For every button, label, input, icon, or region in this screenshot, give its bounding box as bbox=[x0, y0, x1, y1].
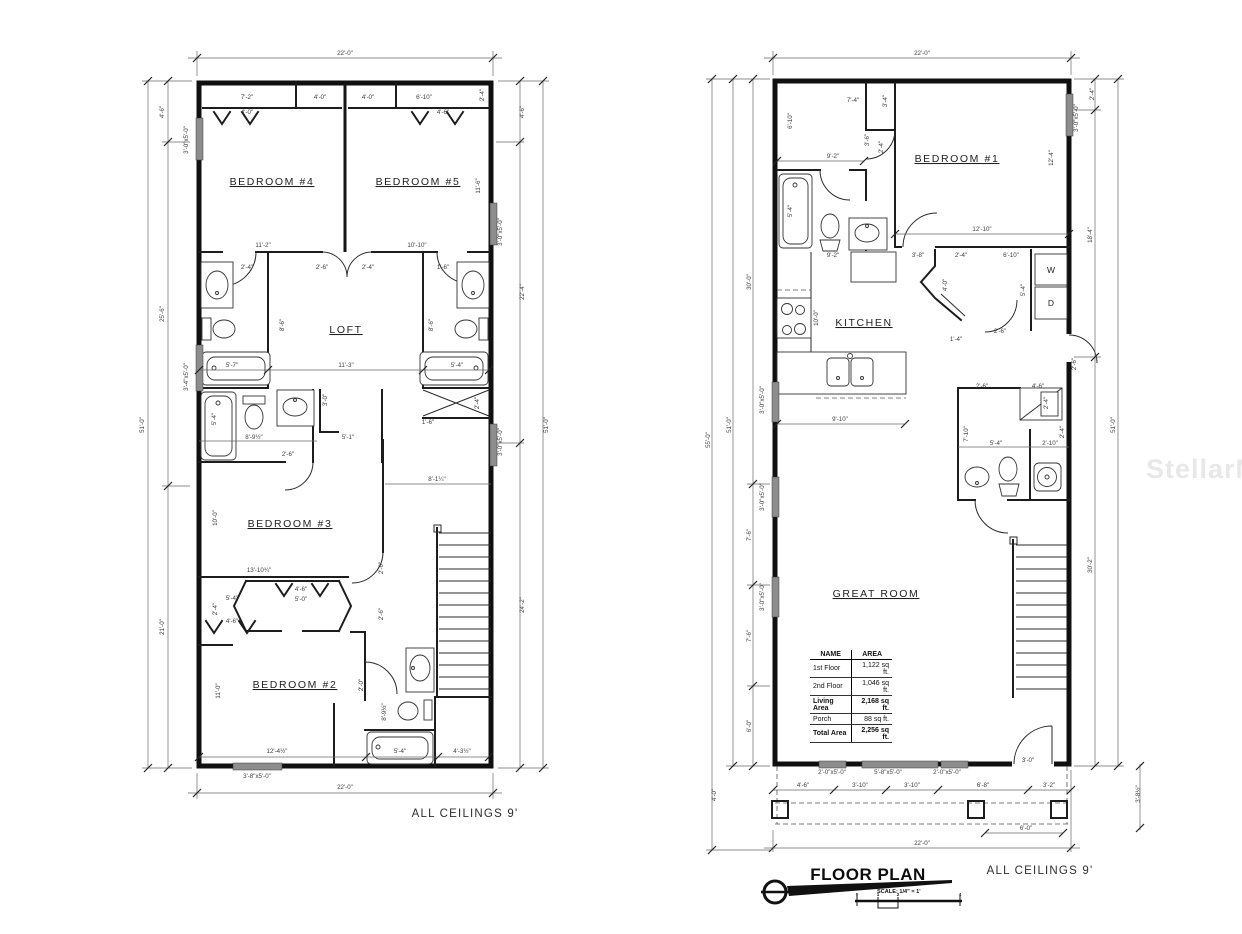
stove-icon bbox=[777, 298, 811, 338]
dim-label: 2'-4" bbox=[1089, 88, 1096, 100]
sheet-title: FLOOR PLAN bbox=[810, 865, 926, 884]
title-block: FLOOR PLAN SCALE: 1/4" = 1' 0124 bbox=[761, 865, 962, 908]
toilet-tank bbox=[243, 396, 265, 404]
toilet-icon bbox=[213, 320, 235, 338]
second-floor-doors bbox=[222, 252, 468, 694]
dim-label: 5'-8"x5'-0" bbox=[874, 769, 902, 776]
second-floor-plan bbox=[142, 51, 549, 799]
burner bbox=[782, 304, 793, 315]
dim-label: D bbox=[1048, 298, 1054, 308]
room-label: KITCHEN bbox=[835, 317, 892, 329]
first-floor-fixtures bbox=[777, 174, 1067, 544]
side-door-opening bbox=[1065, 334, 1073, 362]
dim-label: 5'-4" bbox=[1020, 284, 1027, 296]
dim-label: 8'-9½" bbox=[245, 434, 262, 441]
dim-label: 4'-0" bbox=[711, 789, 718, 801]
dim-label: 6'-10" bbox=[787, 113, 794, 129]
dim-label: 4'-6" bbox=[519, 106, 526, 118]
dim-label: 4'-0" bbox=[942, 279, 949, 291]
dim-label: 4'-6" bbox=[437, 109, 449, 116]
dim-label: 2'-0"x5'-0" bbox=[933, 769, 961, 776]
room-label: BEDROOM #1 bbox=[915, 153, 1000, 165]
dim-label: 2'-10" bbox=[1042, 440, 1058, 447]
dim-label: 9'-2" bbox=[827, 153, 839, 160]
area-table-row: 2nd Floor1,046 sq ft. bbox=[810, 678, 892, 696]
dim-label: 5'-4" bbox=[394, 748, 406, 755]
dim-label: 6'-8" bbox=[977, 782, 989, 789]
dim-label: 4'-3½" bbox=[453, 748, 470, 755]
dim-label: 3'-8" bbox=[912, 252, 924, 259]
dim-label: 3'-0"x5'-0" bbox=[497, 218, 504, 246]
dim-label: 21'-0" bbox=[159, 619, 166, 635]
dim-label: 51'-0" bbox=[726, 417, 733, 433]
dim-label: 3'-2" bbox=[1043, 782, 1055, 789]
dim-label: 10'-0" bbox=[813, 310, 820, 326]
dim-label: 2'-6" bbox=[976, 383, 988, 390]
dim-label: 4'-6" bbox=[295, 586, 307, 593]
dim-label: 8'-1¼" bbox=[428, 476, 445, 483]
name-cell: 2nd Floor bbox=[810, 678, 852, 696]
dim-label: 13'-10¾" bbox=[247, 567, 271, 574]
room-label: LOFT bbox=[329, 324, 362, 336]
toilet-tank bbox=[479, 318, 488, 340]
dim-label: 5'-7" bbox=[226, 362, 238, 369]
dim-label: 22'-0" bbox=[337, 50, 353, 57]
room-label: BEDROOM #5 bbox=[376, 176, 461, 188]
name-cell: Porch bbox=[810, 714, 852, 725]
dim-label: 10'-10" bbox=[407, 242, 426, 249]
dim-label: 2'-4" bbox=[362, 264, 374, 271]
dim-label: 6'-10" bbox=[1003, 252, 1019, 259]
dim-label: 5'-4" bbox=[787, 205, 794, 217]
dim-label: 5'-1" bbox=[342, 434, 354, 441]
dim-label: 4'-0" bbox=[314, 94, 326, 101]
dim-label: 6'-0" bbox=[746, 720, 753, 732]
dim-label: 3'-0"x5'-0" bbox=[183, 126, 190, 154]
dim-label: 1'-6" bbox=[437, 264, 449, 271]
porch-post bbox=[1051, 801, 1067, 818]
area-table-header: NAME AREA bbox=[810, 650, 892, 660]
area-cell: 2,256 sq ft. bbox=[852, 725, 892, 743]
dim-label: 22'-0" bbox=[914, 840, 930, 847]
dim-label: 22'-0" bbox=[337, 784, 353, 791]
stairs-up-icon bbox=[1016, 545, 1067, 689]
dim-label: 51'-0" bbox=[1110, 417, 1117, 433]
dim-label: 5'-4" bbox=[211, 413, 218, 425]
dim-label: 22'-4" bbox=[519, 284, 526, 300]
porch bbox=[772, 766, 1069, 824]
dim-label: 4 bbox=[959, 892, 962, 897]
dim-label: 5'-4" bbox=[451, 362, 463, 369]
dim-label: 1'-6" bbox=[422, 419, 434, 426]
dim-label: 12'-10" bbox=[972, 226, 991, 233]
dim-label: 2'-6" bbox=[378, 562, 385, 574]
dim-label: 8'-6" bbox=[428, 319, 435, 331]
dim-label: 3'-8½" bbox=[1135, 785, 1142, 802]
dim-label: 12'-4" bbox=[1048, 150, 1055, 166]
dim-label: 51'-0" bbox=[139, 417, 146, 433]
dim-label: 4'-0" bbox=[362, 94, 374, 101]
dim-label: 2'-6" bbox=[378, 608, 385, 620]
first-floor-ceiling-note: ALL CEILINGS 9' bbox=[987, 865, 1094, 877]
dim-label: 3'-0" bbox=[322, 394, 329, 406]
room-label: BEDROOM #2 bbox=[253, 679, 338, 691]
first-floor-plan bbox=[706, 51, 1144, 854]
dim-label: 24'-2" bbox=[519, 597, 526, 613]
toilet-icon bbox=[245, 405, 263, 429]
toilet-tank bbox=[820, 240, 840, 251]
dim-label: 0 bbox=[856, 892, 859, 897]
kitchen-sink-icon bbox=[827, 358, 849, 386]
dim-label: 22'-0" bbox=[914, 50, 930, 57]
dim-label: 8'-9½" bbox=[381, 703, 388, 720]
floor-plan-drawing: 22'-0"7'-2"4'-0"4'-0"6'-10"2'-4"4'-0"4'-… bbox=[0, 0, 1242, 934]
dim-label: 5'-4" bbox=[226, 595, 238, 602]
dim-label: 12'-4½" bbox=[267, 748, 288, 755]
room-label: BEDROOM #3 bbox=[248, 518, 333, 530]
dim-label: 3'-4"x5'-0" bbox=[183, 363, 190, 391]
dim-label: 30'-2" bbox=[1087, 557, 1094, 573]
dim-label: 7'-6" bbox=[746, 630, 753, 642]
dim-label: 10'-0" bbox=[212, 510, 219, 526]
dim-label: 3'-8"x5'-0" bbox=[243, 773, 271, 780]
dim-label: 2'-6" bbox=[316, 264, 328, 271]
dim-label: 2 bbox=[897, 892, 900, 897]
toilet-icon bbox=[999, 457, 1017, 481]
toilet-icon bbox=[455, 320, 477, 338]
dim-label: 11'-3" bbox=[338, 362, 353, 369]
dim-label: 4'-6" bbox=[797, 782, 809, 789]
dim-label: 7'-6" bbox=[746, 529, 753, 541]
toilet-tank bbox=[999, 484, 1019, 496]
area-cell: 2,168 sq ft. bbox=[852, 696, 892, 714]
porch-post bbox=[772, 801, 788, 818]
dim-label: 2'-4" bbox=[1043, 397, 1050, 409]
room-label: BEDROOM #4 bbox=[230, 176, 315, 188]
porch-post bbox=[968, 801, 984, 818]
area-table-row: 1st Floor1,122 sq ft. bbox=[810, 660, 892, 678]
name-cell: 1st Floor bbox=[810, 660, 852, 678]
dim-label: 6'-10" bbox=[416, 94, 432, 101]
dim-label: 3'-10" bbox=[904, 782, 920, 789]
dim-label: 7'-10" bbox=[963, 426, 970, 442]
second-floor-ceiling-note: ALL CEILINGS 9' bbox=[412, 808, 519, 820]
dim-label: 18'-4" bbox=[1087, 227, 1094, 243]
dim-label: 3'-10" bbox=[852, 782, 868, 789]
dim-label: 30'-0" bbox=[746, 274, 753, 290]
area-table-row: Total Area2,256 sq ft. bbox=[810, 725, 892, 743]
dim-label: 3'-0"x5'-0" bbox=[1073, 104, 1080, 132]
area-header: AREA bbox=[852, 650, 892, 660]
dim-label: 2'-4" bbox=[241, 264, 253, 271]
dim-label: 2'-0"x5'-0" bbox=[818, 769, 846, 776]
dim-label: 2'-6" bbox=[994, 328, 1006, 335]
stairs-up-icon bbox=[439, 533, 491, 689]
watermark: StellarMLS bbox=[1146, 454, 1242, 484]
dim-label: 3'-0"x5'-0" bbox=[759, 583, 766, 611]
room-label: GREAT ROOM bbox=[833, 588, 920, 600]
dim-label: W bbox=[1047, 265, 1055, 275]
dim-label: 1 bbox=[877, 892, 880, 897]
dim-label: 4'-6" bbox=[159, 106, 166, 118]
dim-label: 55'-0" bbox=[705, 432, 712, 448]
dim-label: 2'-6" bbox=[1071, 358, 1078, 370]
dim-label: 2'-0" bbox=[358, 679, 365, 691]
dim-label: 51'-0" bbox=[543, 417, 550, 433]
area-cell: 1,046 sq ft. bbox=[852, 678, 892, 696]
area-cell: 88 sq ft. bbox=[852, 714, 892, 725]
dim-label: 4'-6" bbox=[226, 618, 238, 625]
first-floor-dim-labels: 22'-0"7'-4"3'-4"6'-10"9'-2"3'-6"2'-4"12'… bbox=[705, 50, 1142, 847]
dim-label: 3'-4" bbox=[882, 95, 889, 107]
dim-label: 25'-6" bbox=[159, 306, 166, 322]
floor-plan-sheet: 22'-0"7'-2"4'-0"4'-0"6'-10"2'-4"4'-0"4'-… bbox=[0, 0, 1242, 934]
dim-label: 2'-4" bbox=[212, 603, 219, 615]
appliance-letters: WD bbox=[1047, 265, 1055, 308]
refrigerator-icon bbox=[851, 252, 896, 282]
dim-label: 2'-4" bbox=[474, 397, 481, 409]
area-table-row: Porch88 sq ft. bbox=[810, 714, 892, 725]
first-floor-dim-lines bbox=[706, 51, 1140, 852]
dim-label: 5'-4" bbox=[990, 440, 1002, 447]
area-table: NAME AREA 1st Floor1,122 sq ft.2nd Floor… bbox=[810, 650, 892, 743]
dim-label: 11'-6" bbox=[475, 178, 482, 193]
dim-label: 3'-6" bbox=[864, 134, 871, 146]
dim-label: 8'-6" bbox=[279, 319, 286, 331]
dim-label: 3'-0" bbox=[1022, 757, 1034, 764]
dim-label: 4'-6" bbox=[1032, 383, 1044, 390]
dim-label: 4'-0" bbox=[241, 109, 253, 116]
toilet-tank bbox=[202, 318, 211, 340]
dim-label: 2'-4" bbox=[479, 89, 486, 101]
name-header: NAME bbox=[810, 650, 852, 660]
dim-label: 7'-2" bbox=[241, 94, 253, 101]
area-table-row: Living Area2,168 sq ft. bbox=[810, 696, 892, 714]
name-cell: Total Area bbox=[810, 725, 852, 743]
dim-label: 11'-0" bbox=[215, 683, 222, 698]
faucet bbox=[848, 354, 853, 359]
toilet-icon bbox=[821, 214, 839, 238]
dim-label: 3'-0"x5'-0" bbox=[759, 386, 766, 414]
dim-label: 5'-0" bbox=[295, 596, 307, 603]
dim-label: 7'-4" bbox=[847, 97, 859, 104]
dim-label: 9'-10" bbox=[832, 416, 848, 423]
dim-label: 3'-0"x5'-0" bbox=[759, 483, 766, 511]
dim-label: 2'-4" bbox=[955, 252, 967, 259]
area-cell: 1,122 sq ft. bbox=[852, 660, 892, 678]
dim-label: 2'-4" bbox=[1059, 426, 1066, 438]
name-cell: Living Area bbox=[810, 696, 852, 714]
dim-label: 3'-0"x5'-0" bbox=[497, 428, 504, 456]
dim-label: 11'-2" bbox=[255, 242, 270, 249]
toilet-tank bbox=[424, 700, 432, 720]
dim-label: 1'-4" bbox=[950, 336, 962, 343]
dim-label: 2'-6" bbox=[282, 451, 294, 458]
dim-label: 6'-0" bbox=[1020, 825, 1032, 832]
dim-label: 2'-4" bbox=[878, 141, 885, 153]
toilet-icon bbox=[398, 702, 418, 720]
dim-label: 9'-2" bbox=[827, 252, 839, 259]
